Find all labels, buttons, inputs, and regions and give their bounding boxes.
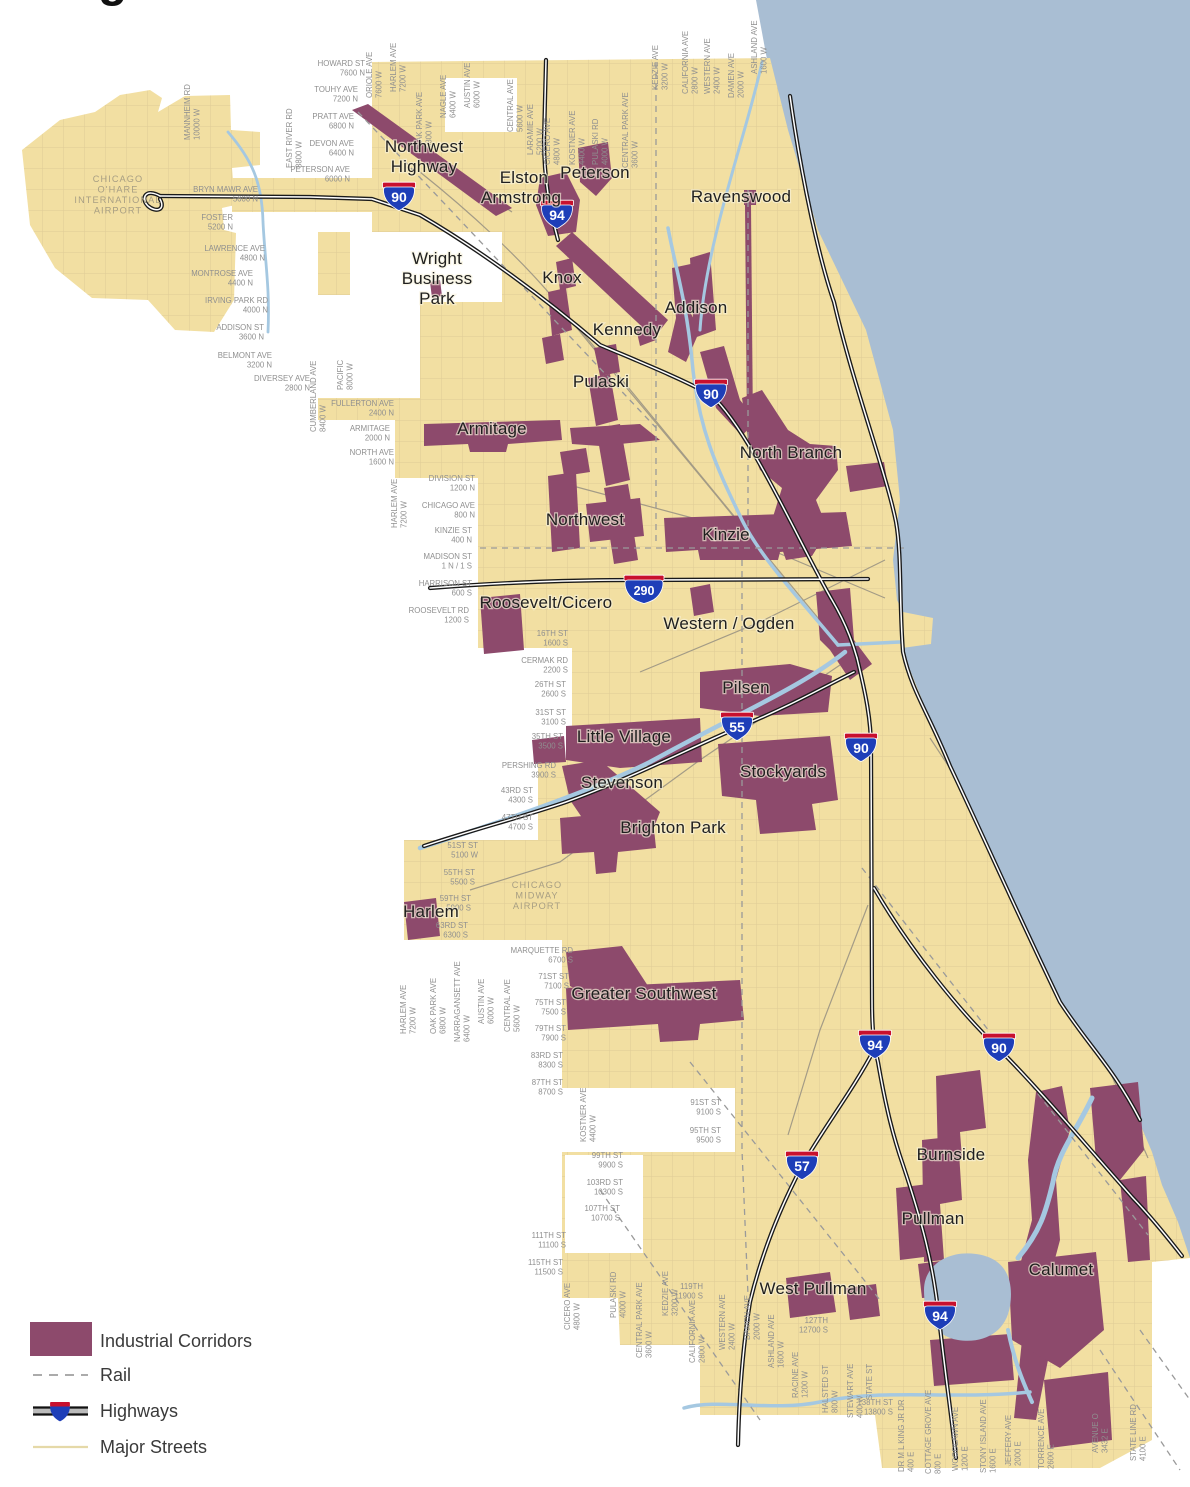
corridor-label: Calumet <box>1029 1260 1094 1279</box>
legend-label-highways: Highways <box>100 1401 178 1421</box>
legend: Industrial Corridors Rail Highways Major… <box>30 1322 252 1457</box>
street-label: 75TH ST7500 S <box>535 998 566 1016</box>
title-fragment: g <box>98 0 127 7</box>
street-label: NARRAGANSETT AVE6400 W <box>453 961 471 1042</box>
street-label: PACIFIC8000 W <box>336 359 354 390</box>
svg-text:90: 90 <box>703 386 719 402</box>
street-label: PRATT AVE6800 N <box>312 112 354 130</box>
corridor-label: Little Village <box>577 727 671 746</box>
street-label: 26TH ST2600 S <box>535 680 566 698</box>
street-label: HARLEM AVE7200 W <box>390 479 408 528</box>
corridor-label: Knox <box>542 268 582 287</box>
corridor-label: Armstrong <box>481 188 561 207</box>
airport-label: CHICAGOMIDWAYAIRPORT <box>512 880 563 911</box>
street-label: HARLEM AVE7200 W <box>389 43 407 92</box>
corridor-label: Western / Ogden <box>663 614 794 633</box>
corridor-label: Pilsen <box>722 678 770 697</box>
street-label: MARQUETTE RD6700 S <box>511 946 574 964</box>
street-label: 71ST ST7100 S <box>538 972 569 990</box>
street-label: 87TH ST8700 S <box>532 1078 563 1096</box>
corridor-label: Peterson <box>560 163 630 182</box>
street-label: KEDZIE AVE3200 W <box>651 45 669 90</box>
svg-text:94: 94 <box>549 207 565 223</box>
corridor-swatch <box>30 1322 92 1356</box>
corridor-label: Armitage <box>457 419 527 438</box>
map-canvas: 909490290559094905794 CHICAGOO'HAREINTER… <box>0 0 1190 1487</box>
svg-text:90: 90 <box>991 1040 1007 1056</box>
legend-label-rail: Rail <box>100 1365 131 1385</box>
legend-shield-icon <box>50 1402 70 1421</box>
street-label: EAST RIVER RD8800 W <box>285 108 303 168</box>
street-label: DIVISION ST1200 N <box>429 474 476 492</box>
corridor-label: Roosevelt/Cicero <box>480 593 613 612</box>
street-label: 43RD ST4300 S <box>501 786 533 804</box>
corridor-label: Harlem <box>403 902 459 921</box>
street-label: KOSTNER AVE4400 W <box>579 1088 597 1142</box>
corridor-label: Elston <box>500 168 548 187</box>
svg-text:94: 94 <box>932 1308 948 1324</box>
svg-text:290: 290 <box>634 584 655 598</box>
corridor-label: Pulaski <box>573 372 629 391</box>
street-label: TOUHY AVE7200 N <box>314 85 358 103</box>
corridor-label: Kennedy <box>593 320 662 339</box>
corridor-label: Burnside <box>917 1145 986 1164</box>
corridor-label: Kinzie <box>702 525 750 544</box>
street-label: DIVERSEY AVE2800 N <box>254 374 310 392</box>
chicago-industrial-corridors-map-figure: 909490290559094905794 CHICAGOO'HAREINTER… <box>0 0 1190 1487</box>
street-label: 31ST ST3100 S <box>535 708 566 726</box>
street-label: 51ST ST5100 W <box>447 841 478 859</box>
street-label: CHICAGO AVE800 N <box>422 501 475 519</box>
corridor-label: Stockyards <box>740 762 826 781</box>
street-label: ADDISON ST3600 N <box>216 323 264 341</box>
street-label: KINZIE ST400 N <box>435 526 472 544</box>
corridor-label: Brighton Park <box>620 818 726 837</box>
corridor-label: Addison <box>665 298 728 317</box>
corridor-label: Stevenson <box>581 773 663 792</box>
corridor-label: Pullman <box>902 1209 965 1228</box>
street-label: ARMITAGE2000 N <box>350 424 390 442</box>
corridor-label: NorthwestHighway <box>385 137 463 176</box>
street-label: CERMAK RD2200 S <box>521 656 568 674</box>
street-label: NORTH AVE1600 N <box>350 448 394 466</box>
street-label: ROOSEVELT RD1200 S <box>409 606 470 624</box>
corridor-label: Ravenswood <box>691 187 791 206</box>
street-label: ORIOLE AVE7600 W <box>365 52 383 98</box>
legend-item-industrial-corridors: Industrial Corridors <box>30 1322 252 1356</box>
street-label: MADISON ST1 N / 1 S <box>423 552 472 570</box>
street-label: 91ST ST9100 S <box>690 1098 721 1116</box>
street-label: 79TH ST7900 S <box>535 1024 566 1042</box>
svg-text:94: 94 <box>867 1037 883 1053</box>
street-label: CENTRAL AVE5600 W <box>503 979 521 1032</box>
street-label: 95TH ST9500 S <box>690 1126 721 1144</box>
corridor-label: West Pullman <box>760 1279 867 1298</box>
street-label: MANNHEIM RD10000 W <box>183 84 201 140</box>
street-label: DEVON AVE6400 N <box>310 139 355 157</box>
street-label: BELMONT AVE3200 N <box>218 351 272 369</box>
street-label: 83RD ST8300 S <box>531 1051 563 1069</box>
svg-text:90: 90 <box>853 740 869 756</box>
legend-label-major-streets: Major Streets <box>100 1437 207 1457</box>
street-label: CUMBERLAND AVE8400 W <box>309 361 327 432</box>
street-label: PERSHING RD3900 S <box>502 761 557 779</box>
corridor-label: North Branch <box>740 443 843 462</box>
svg-text:55: 55 <box>729 719 745 735</box>
legend-item-highways: Highways <box>33 1401 178 1421</box>
corridor-label: Northwest <box>546 510 624 529</box>
legend-item-rail: Rail <box>33 1365 131 1385</box>
street-label: HOWARD ST7600 N <box>318 59 366 77</box>
corridor-label: Greater Southwest <box>571 984 716 1003</box>
svg-text:90: 90 <box>391 189 407 205</box>
street-label: HARLEM AVE7200 W <box>399 985 417 1034</box>
street-label: OAK PARK AVE6800 W <box>429 978 447 1034</box>
street-label: STATE ST <box>865 1364 874 1400</box>
street-label: AUSTIN AVE6000 W <box>477 979 495 1024</box>
street-label: 111TH ST11100 S <box>532 1231 567 1249</box>
street-label: 115TH ST11500 S <box>528 1258 563 1276</box>
legend-label-industrial-corridors: Industrial Corridors <box>100 1331 252 1351</box>
legend-item-major-streets: Major Streets <box>33 1437 207 1457</box>
svg-text:57: 57 <box>794 1158 810 1174</box>
